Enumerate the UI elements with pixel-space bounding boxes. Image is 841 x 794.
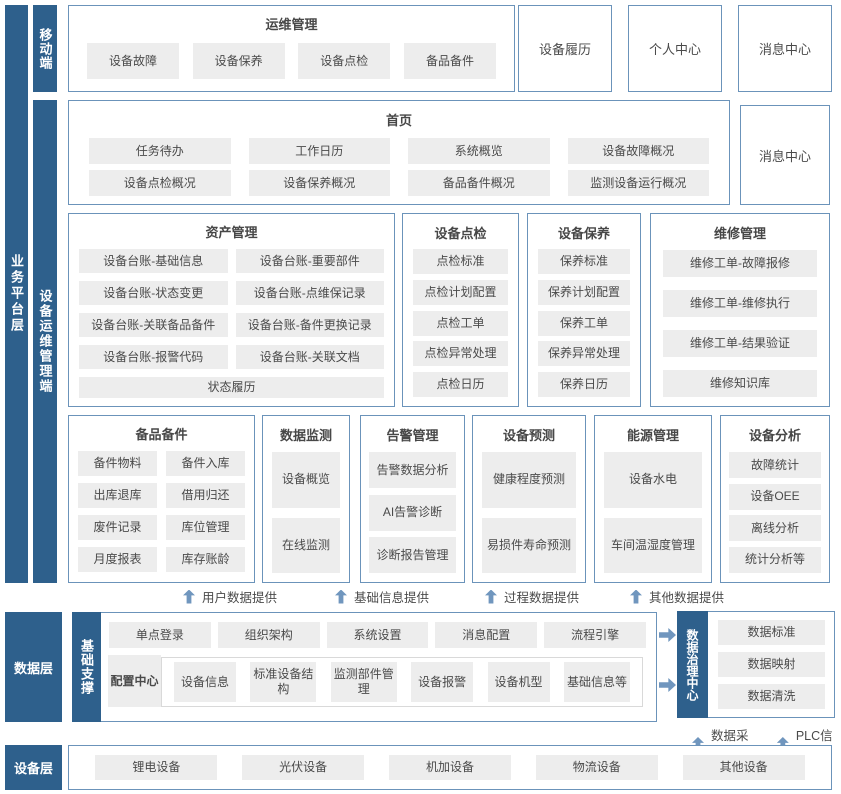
module-item: 故障统计 <box>729 452 821 478</box>
module-item: 库存账龄 <box>166 547 245 572</box>
flow-label: 基础信息提供 <box>354 587 429 606</box>
arrow-up-icon <box>630 590 642 604</box>
arrow-up-icon <box>183 590 195 604</box>
section-baoyang: 设备保养 保养标准 保养计划配置 保养工单 保养异常处理 保养日历 <box>527 213 641 407</box>
module-item: 备件入库 <box>166 451 245 476</box>
flow-label: 用户数据提供 <box>202 587 277 606</box>
section-gaojing: 告警管理 告警数据分析 AI告警诊断 诊断报告管理 <box>360 415 465 583</box>
module-item: 保养异常处理 <box>538 341 630 366</box>
layer-label-data: 数据层 <box>5 612 62 722</box>
module-item: 机加设备 <box>389 755 511 780</box>
arrow-up-icon <box>335 590 347 604</box>
section-title: 设备分析 <box>729 425 821 444</box>
section-title: 备品备件 <box>78 424 245 443</box>
module-item: 消息配置 <box>435 622 537 648</box>
flow-label: 过程数据提供 <box>504 587 579 606</box>
module-item: 统计分析等 <box>729 547 821 573</box>
module-item: 设备台账-基础信息 <box>79 249 228 273</box>
module-item: 系统设置 <box>327 622 429 648</box>
module-item: 出库退库 <box>78 483 157 508</box>
box-xiaoxi-zhongxin-home: 消息中心 <box>740 105 830 205</box>
box-xiaoxi-zhongxin-top: 消息中心 <box>738 5 832 92</box>
module-item: 监测部件管理 <box>331 662 397 702</box>
module-item: 维修工单-故障报修 <box>663 250 817 277</box>
layer-bar-ops-management: 设备运维管理端 <box>33 100 57 583</box>
module-item: 设备OEE <box>729 484 821 510</box>
module-item: 设备故障概况 <box>568 138 710 164</box>
module-item: 设备台账-报警代码 <box>79 345 228 369</box>
arrow-up-icon <box>485 590 497 604</box>
module-item: 车间温湿度管理 <box>604 518 702 574</box>
architecture-diagram: 业务平台层 移动端 设备运维管理端 运维管理 设备故障 设备保养 设备点检 备品… <box>0 0 841 794</box>
flow-base-info: 基础信息提供 <box>335 587 429 606</box>
module-item: 设备台账-重要部件 <box>236 249 385 273</box>
module-item: 月度报表 <box>78 547 157 572</box>
module-item: 设备台账-关联文档 <box>236 345 385 369</box>
layer-label-device: 设备层 <box>5 745 62 790</box>
arrow-right-icon <box>659 628 676 642</box>
section-asset: 资产管理 设备台账-基础信息 设备台账-重要部件 设备台账-状态变更 设备台账-… <box>68 213 395 407</box>
section-base-support: 基础支撑 单点登录 组织架构 系统设置 消息配置 流程引擎 配置中心 设备信息 … <box>72 612 657 722</box>
module-item: 设备台账-备件更换记录 <box>236 313 385 337</box>
section-yuce: 设备预测 健康程度预测 易损件寿命预测 <box>472 415 586 583</box>
section-jiance: 数据监测 设备概览 在线监测 <box>262 415 350 583</box>
module-item: 保养工单 <box>538 311 630 336</box>
section-fenxi: 设备分析 故障统计 设备OEE 离线分析 统计分析等 <box>720 415 830 583</box>
module-item: 离线分析 <box>729 515 821 541</box>
module-item: 点检工单 <box>413 311 508 336</box>
config-items-container: 设备信息 标准设备结构 监测部件管理 设备报警 设备机型 基础信息等 <box>161 657 643 707</box>
module-item: 点检计划配置 <box>413 280 508 305</box>
arrow-right-icon <box>659 678 676 692</box>
tab-base-support: 基础支撑 <box>72 612 101 722</box>
section-title: 设备预测 <box>482 425 576 444</box>
section-data-governance: 数据治理中心 数据标准 数据映射 数据清洗 <box>677 611 835 718</box>
module-item: 备件物料 <box>78 451 157 476</box>
module-item: 废件记录 <box>78 515 157 540</box>
module-item: 工作日历 <box>249 138 391 164</box>
module-item: 任务待办 <box>89 138 231 164</box>
module-item: 标准设备结构 <box>250 662 316 702</box>
module-item: 锂电设备 <box>95 755 217 780</box>
module-item: 设备点检概况 <box>89 170 231 196</box>
module-item: 设备台账-关联备品备件 <box>79 313 228 337</box>
section-home: 首页 任务待办 工作日历 系统概览 设备故障概况 设备点检概况 设备保养概况 备… <box>68 100 730 205</box>
module-item: 设备台账-点维保记录 <box>236 281 385 305</box>
flow-process-data: 过程数据提供 <box>485 587 579 606</box>
section-nengyuan: 能源管理 设备水电 车间温湿度管理 <box>594 415 712 583</box>
module-item: 设备台账-状态变更 <box>79 281 228 305</box>
module-item: 维修工单-结果验证 <box>663 330 817 357</box>
module-item: AI告警诊断 <box>369 495 456 531</box>
section-title: 首页 <box>89 110 709 129</box>
module-item: 设备点检 <box>298 43 390 79</box>
module-item: 设备概览 <box>272 452 340 508</box>
section-title: 资产管理 <box>79 222 384 241</box>
module-item: 保养日历 <box>538 372 630 397</box>
module-item: 备品备件 <box>404 43 496 79</box>
module-item: 点检日历 <box>413 372 508 397</box>
module-item: 诊断报告管理 <box>369 537 456 573</box>
module-item: 物流设备 <box>536 755 658 780</box>
module-item: 光伏设备 <box>242 755 364 780</box>
module-item: 数据标准 <box>718 620 825 645</box>
module-item: 维修工单-维修执行 <box>663 290 817 317</box>
section-yunwei-guanli: 运维管理 设备故障 设备保养 设备点检 备品备件 <box>68 5 515 92</box>
module-item: 设备故障 <box>87 43 179 79</box>
section-dianjian: 设备点检 点检标准 点检计划配置 点检工单 点检异常处理 点检日历 <box>402 213 519 407</box>
module-item: 保养标准 <box>538 249 630 274</box>
module-item: 监测设备运行概况 <box>568 170 710 196</box>
module-item: 设备水电 <box>604 452 702 508</box>
box-config-center: 配置中心 <box>108 655 161 707</box>
section-title: 告警管理 <box>369 425 456 444</box>
module-item: 点检异常处理 <box>413 341 508 366</box>
module-item: 系统概览 <box>408 138 550 164</box>
module-item: 在线监测 <box>272 518 340 574</box>
section-title: 设备点检 <box>413 223 508 242</box>
module-item: 易损件寿命预测 <box>482 518 576 574</box>
module-item: 组织架构 <box>218 622 320 648</box>
section-weixiu: 维修管理 维修工单-故障报修 维修工单-维修执行 维修工单-结果验证 维修知识库 <box>650 213 830 407</box>
module-item: 设备保养概况 <box>249 170 391 196</box>
box-shebei-lvli: 设备履历 <box>518 5 612 92</box>
section-title: 设备保养 <box>538 223 630 242</box>
flow-user-data: 用户数据提供 <box>183 587 277 606</box>
layer-bar-mobile: 移动端 <box>33 5 57 92</box>
section-title: 维修管理 <box>663 223 817 242</box>
module-item: 基础信息等 <box>564 662 630 702</box>
box-geren-zhongxin: 个人中心 <box>628 5 722 92</box>
module-item-wide: 状态履历 <box>79 377 384 398</box>
module-item: 维修知识库 <box>663 370 817 397</box>
tab-data-governance: 数据治理中心 <box>677 611 708 718</box>
section-title: 能源管理 <box>604 425 702 444</box>
module-item: 备品备件概况 <box>408 170 550 196</box>
module-item: 数据映射 <box>718 652 825 677</box>
section-device-layer: 锂电设备 光伏设备 机加设备 物流设备 其他设备 <box>68 745 832 790</box>
module-item: 单点登录 <box>109 622 211 648</box>
flow-other-data: 其他数据提供 <box>630 587 724 606</box>
module-item: 设备机型 <box>488 662 550 702</box>
module-item: 设备报警 <box>411 662 473 702</box>
module-item: 数据清洗 <box>718 684 825 709</box>
module-item: 保养计划配置 <box>538 280 630 305</box>
section-title: 数据监测 <box>272 425 340 444</box>
module-item: 设备信息 <box>174 662 236 702</box>
layer-bar-business-platform: 业务平台层 <box>5 5 28 583</box>
section-beipin: 备品备件 备件物料 备件入库 出库退库 借用归还 废件记录 库位管理 月度报表 … <box>68 415 255 583</box>
module-item: 流程引擎 <box>544 622 646 648</box>
module-item: 设备保养 <box>193 43 285 79</box>
section-title: 运维管理 <box>87 14 496 33</box>
module-item: 健康程度预测 <box>482 452 576 508</box>
module-item: 点检标准 <box>413 249 508 274</box>
module-item: 告警数据分析 <box>369 452 456 488</box>
flow-label: 其他数据提供 <box>649 587 724 606</box>
module-item: 库位管理 <box>166 515 245 540</box>
module-item: 其他设备 <box>683 755 805 780</box>
module-item: 借用归还 <box>166 483 245 508</box>
